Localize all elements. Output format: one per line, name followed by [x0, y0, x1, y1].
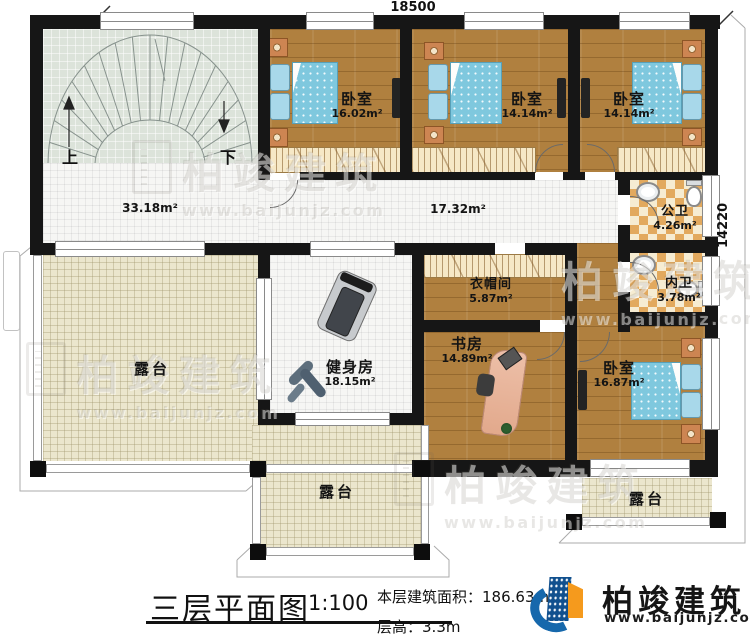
wall — [30, 15, 43, 255]
railing — [582, 517, 710, 526]
railing — [252, 477, 261, 544]
column — [250, 461, 266, 477]
wall — [618, 172, 630, 195]
pillow — [428, 93, 448, 120]
wall — [400, 15, 412, 180]
wardrobe — [424, 255, 565, 277]
room-name: 内卫 — [657, 277, 700, 292]
room-area: 4.26m² — [653, 220, 696, 233]
window — [100, 12, 194, 30]
tv — [557, 78, 566, 118]
plant — [501, 423, 512, 434]
room-area: 3.78m² — [657, 292, 700, 305]
floor-height-text: 层高：3.3m — [377, 616, 460, 637]
column — [414, 461, 430, 477]
nightstand — [682, 128, 702, 146]
stair-up-label: 上 — [62, 144, 78, 168]
tv — [578, 370, 587, 410]
wall — [412, 243, 424, 425]
pillow — [681, 364, 701, 390]
window — [702, 256, 720, 306]
room-area: 5.87m² — [469, 293, 512, 306]
floor-height-value: 3.3m — [422, 618, 460, 636]
column — [30, 461, 46, 477]
room-area: 14.89m² — [441, 353, 492, 366]
floor-height-label: 层高： — [377, 618, 422, 636]
nightstand — [424, 42, 444, 60]
room-label-bedroom-3: 卧室 14.14m² — [603, 91, 654, 121]
room-area: 14.14m² — [603, 108, 654, 121]
hallway-floor — [577, 243, 618, 334]
plan-scale: 1:100 — [308, 591, 369, 615]
room-area: 18.15m² — [324, 376, 375, 389]
wall — [565, 243, 577, 460]
window — [306, 12, 374, 30]
logo-building — [546, 577, 571, 621]
nightstand — [681, 338, 701, 358]
pillow — [428, 64, 448, 91]
floor-area-label: 本层建筑面积： — [377, 588, 482, 606]
room-area: 14.14m² — [501, 108, 552, 121]
room-name: 卧室 — [501, 91, 552, 108]
pillow — [682, 93, 702, 120]
wardrobe — [412, 148, 535, 172]
wall — [258, 15, 270, 180]
room-label-gym: 健身房 18.15m² — [324, 359, 375, 389]
hall-area-label: 33.18m² — [122, 202, 178, 216]
room-area: 16.87m² — [593, 377, 644, 390]
room-name: 卧室 — [331, 91, 382, 108]
dimension-top: 18500 — [390, 0, 435, 15]
wall — [258, 413, 295, 425]
window — [464, 12, 544, 30]
room-label-terrace-right: 露台 — [629, 491, 665, 508]
nightstand — [424, 126, 444, 144]
tv — [581, 78, 590, 118]
window — [702, 338, 720, 430]
logo-building-orange — [568, 582, 583, 618]
terrace-door — [295, 412, 390, 426]
brand-logo-icon — [528, 574, 594, 634]
column — [414, 544, 430, 560]
brand-url: www.baijunjz.com — [604, 610, 750, 626]
office-chair — [476, 373, 496, 397]
pillow — [682, 64, 702, 91]
pillow — [681, 392, 701, 418]
room-label-bedroom-2: 卧室 14.14m² — [501, 91, 552, 121]
column — [710, 512, 726, 528]
column — [566, 514, 582, 530]
window — [590, 459, 690, 477]
room-name: 卧室 — [593, 360, 644, 377]
pillow — [270, 93, 290, 120]
railing — [421, 425, 429, 544]
room-area: 16.02m² — [331, 108, 382, 121]
railing — [46, 464, 250, 473]
window — [310, 241, 395, 257]
corridor-area-label: 17.32m² — [430, 203, 486, 217]
bed — [450, 62, 502, 124]
room-name: 健身房 — [324, 359, 375, 376]
stair-down-label: 下 — [220, 144, 236, 168]
wall — [300, 172, 535, 180]
spiral-stairs — [43, 29, 258, 163]
nightstand — [682, 40, 702, 58]
room-label-cloakroom: 衣帽间 5.87m² — [469, 278, 512, 306]
room-label-bedroom-1: 卧室 16.02m² — [331, 91, 382, 121]
wall — [563, 172, 585, 180]
wardrobe — [618, 148, 705, 172]
wardrobe — [270, 148, 400, 172]
railing — [33, 255, 42, 461]
room-label-bedroom-4: 卧室 16.87m² — [593, 360, 644, 390]
floor-plan-canvas: 柏竣建筑 www.baijunjz.com 柏竣建筑 www.baijunjz.… — [0, 0, 750, 641]
room-name: 卧室 — [603, 91, 654, 108]
railing — [266, 464, 414, 473]
wall — [390, 413, 424, 425]
revision-marker — [3, 251, 20, 331]
room-label-study: 书房 14.89m² — [441, 336, 492, 366]
room-name: 衣帽间 — [469, 278, 512, 293]
pillow — [270, 64, 290, 91]
room-label-terrace-middle: 露台 — [319, 484, 355, 501]
room-label-public-bath: 公卫 4.26m² — [653, 205, 696, 233]
railing — [266, 547, 414, 556]
room-label-terrace-left: 露台 — [134, 361, 170, 378]
terrace-left-floor — [43, 255, 258, 461]
nightstand — [681, 424, 701, 444]
window — [619, 12, 690, 30]
window — [55, 241, 205, 257]
room-name: 书房 — [441, 336, 492, 353]
wall — [412, 320, 540, 332]
dimension-right: 14220 — [716, 203, 731, 248]
window — [256, 278, 272, 400]
wall — [618, 312, 705, 326]
column — [250, 544, 266, 560]
wall — [618, 240, 705, 253]
wall — [568, 15, 580, 180]
room-name: 公卫 — [653, 205, 696, 220]
room-label-private-bath: 内卫 3.78m² — [657, 277, 700, 305]
